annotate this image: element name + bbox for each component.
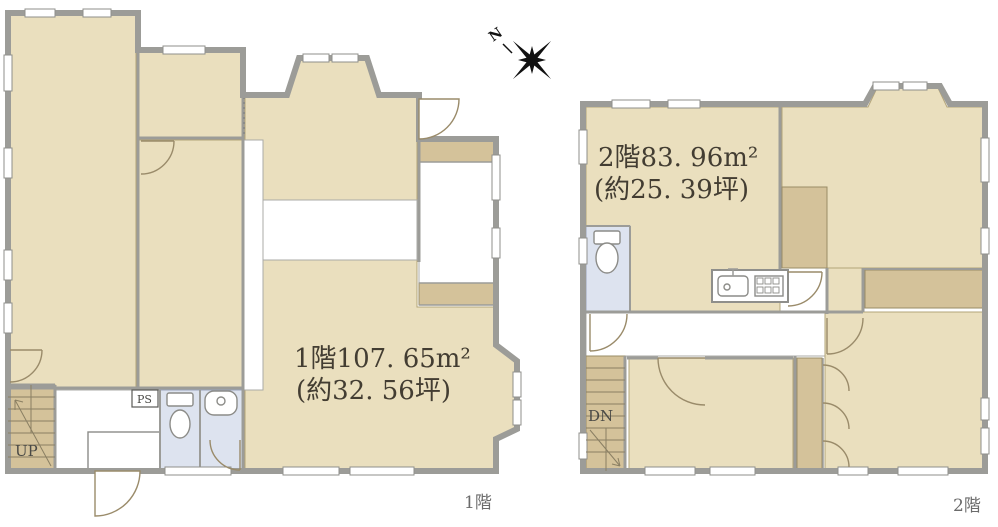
floor2-plan: DN 2階83. 96m² (約25. 39坪) 2階 [579, 82, 989, 516]
sink-icon [205, 391, 237, 415]
f2-stairs-label: DN [588, 407, 613, 425]
f1-closet-bottom [419, 283, 496, 305]
f1-corridor [243, 140, 263, 390]
f1-stairs-label: UP [15, 442, 38, 460]
floor-plan-canvas: UP PS 1階107. 65m² (約32. 56坪) 1階 [0, 0, 998, 527]
compass-star-icon [513, 41, 551, 79]
f2-door [788, 272, 822, 306]
f1-counter [88, 432, 160, 470]
f2-floor-label: 2階 [953, 496, 981, 516]
f1-room-mid [138, 140, 242, 390]
f2-closet-east [865, 270, 983, 308]
compass-rose: N [486, 25, 551, 79]
f1-ps-label: PS [137, 393, 152, 406]
f2-hallway [586, 312, 863, 356]
f2-area-line1: 2階83. 96m² [598, 143, 758, 173]
toilet-icon [594, 231, 620, 273]
f1-east-strip [419, 162, 496, 283]
f1-room-west [8, 13, 136, 390]
f2-room-southeast [825, 312, 983, 471]
floor1-plan: UP PS 1階107. 65m² (約32. 56坪) 1階 [4, 9, 521, 516]
floor-plan-page: UP PS 1階107. 65m² (約32. 56坪) 1階 [0, 0, 998, 527]
f1-area-line2: (約32. 56坪) [296, 376, 451, 406]
f1-back-door [95, 471, 140, 516]
f2-room-south-center [629, 358, 793, 471]
f2-area-line2: (約25. 39坪) [594, 175, 749, 205]
f1-area-line1: 1階107. 65m² [294, 344, 471, 374]
kitchen-counter-icon [712, 269, 788, 302]
f2-closet-mid [782, 187, 827, 268]
compass-north-label: N [486, 25, 506, 46]
compass-needle [503, 44, 512, 53]
f1-entrance-door [419, 99, 459, 139]
f1-closet-top [419, 140, 496, 162]
f1-room-north [245, 58, 417, 200]
f1-room-mid-top [138, 50, 242, 138]
f2-closet-south [797, 358, 822, 471]
f1-open-band [263, 200, 417, 260]
f1-floor-label: 1階 [464, 493, 492, 513]
